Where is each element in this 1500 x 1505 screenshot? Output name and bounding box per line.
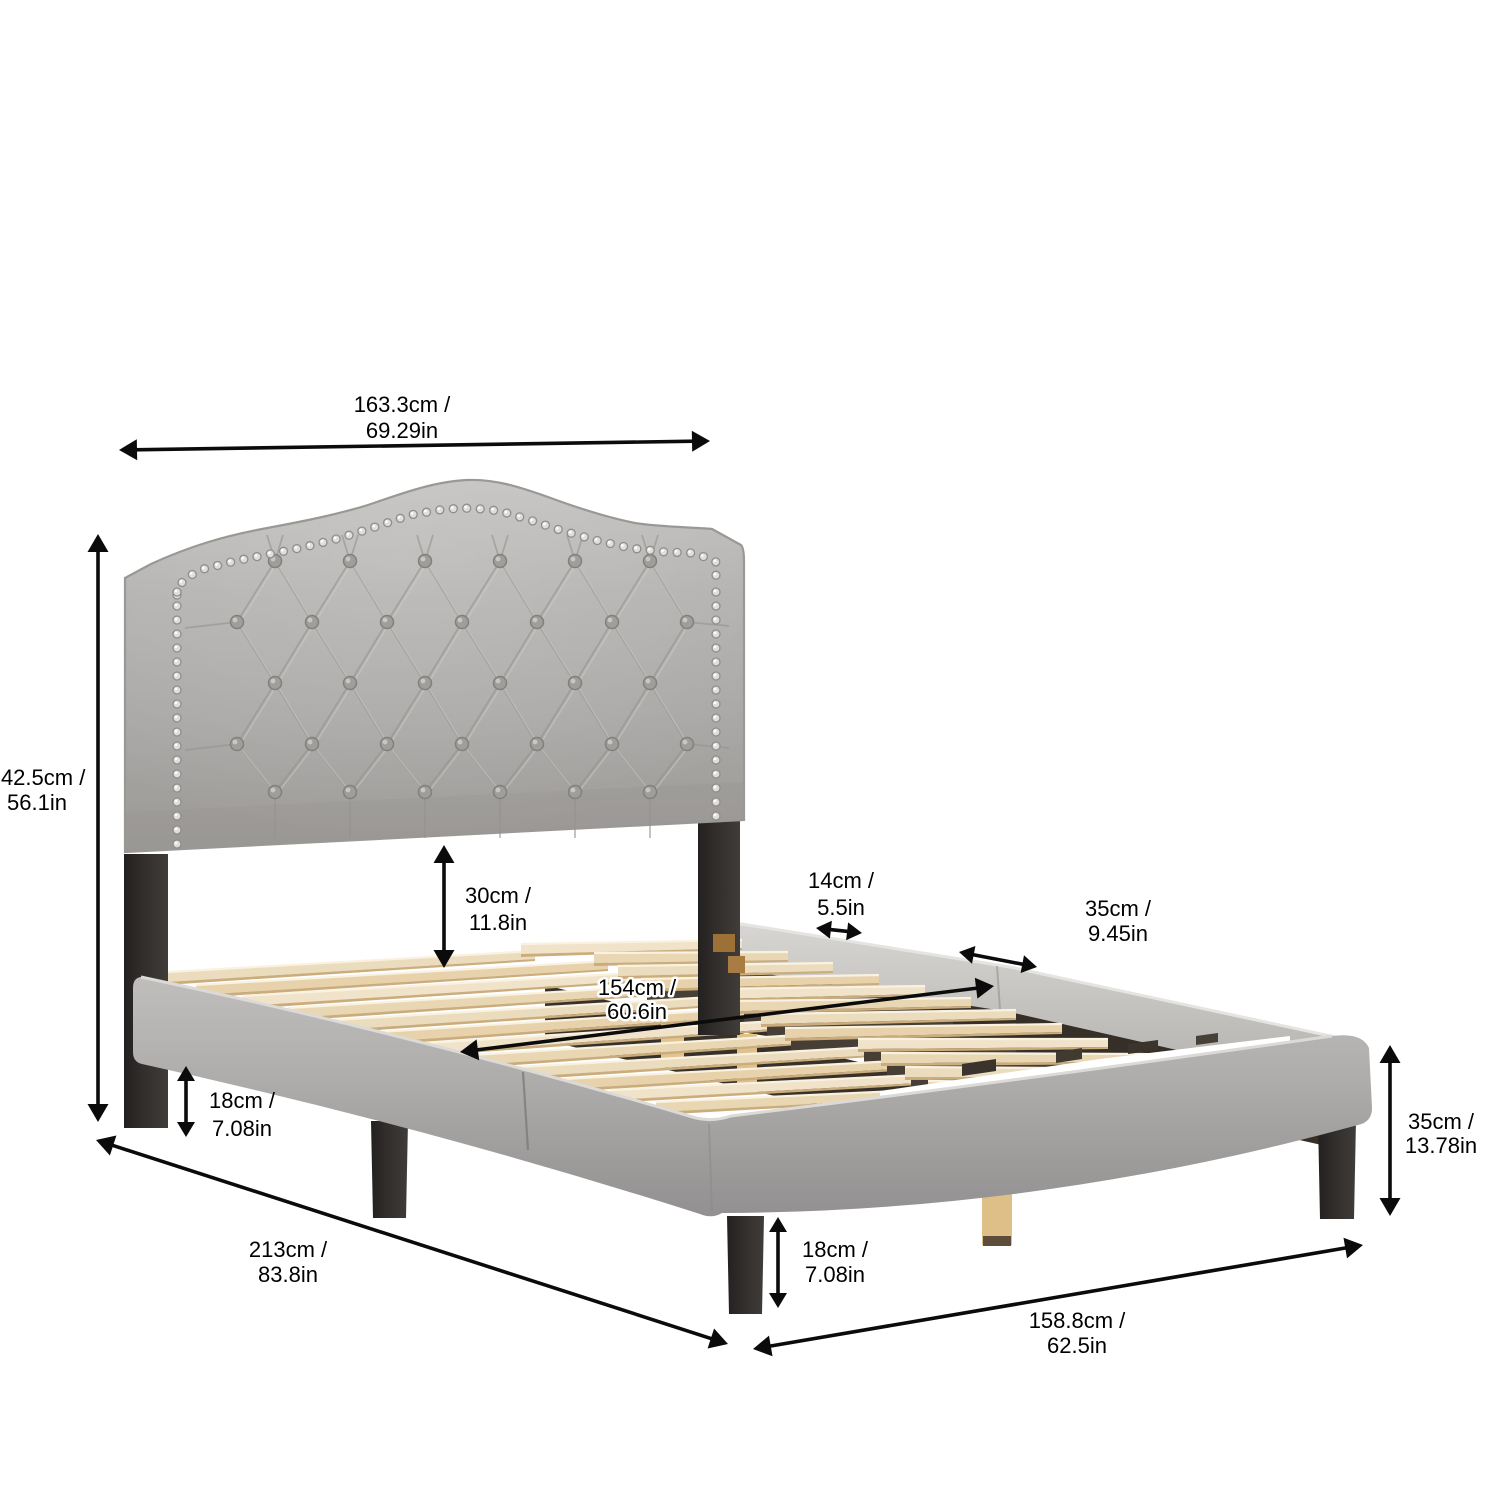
svg-text:9.45in: 9.45in	[1088, 921, 1148, 946]
svg-text:30cm /: 30cm /	[465, 883, 532, 908]
svg-text:163.3cm /: 163.3cm /	[354, 392, 451, 417]
svg-text:69.29in: 69.29in	[366, 418, 438, 443]
svg-text:35cm /: 35cm /	[1408, 1109, 1475, 1134]
svg-text:7.08in: 7.08in	[805, 1262, 865, 1287]
svg-text:142.5cm /: 142.5cm /	[0, 765, 86, 790]
svg-text:14cm /: 14cm /	[808, 868, 875, 893]
svg-text:213cm /: 213cm /	[249, 1237, 328, 1262]
svg-text:35cm /: 35cm /	[1085, 896, 1152, 921]
svg-text:13.78in: 13.78in	[1405, 1133, 1477, 1158]
svg-text:18cm /: 18cm /	[209, 1088, 276, 1113]
svg-text:5.5in: 5.5in	[817, 895, 865, 920]
svg-text:7.08in: 7.08in	[212, 1116, 272, 1141]
svg-text:154cm /: 154cm /	[598, 975, 677, 1000]
svg-text:158.8cm /: 158.8cm /	[1029, 1308, 1126, 1333]
svg-text:56.1in: 56.1in	[7, 790, 67, 815]
svg-text:60.6in: 60.6in	[607, 999, 667, 1024]
svg-text:62.5in: 62.5in	[1047, 1333, 1107, 1358]
svg-text:83.8in: 83.8in	[258, 1262, 318, 1287]
svg-text:11.8in: 11.8in	[469, 910, 527, 935]
svg-text:18cm /: 18cm /	[802, 1237, 869, 1262]
